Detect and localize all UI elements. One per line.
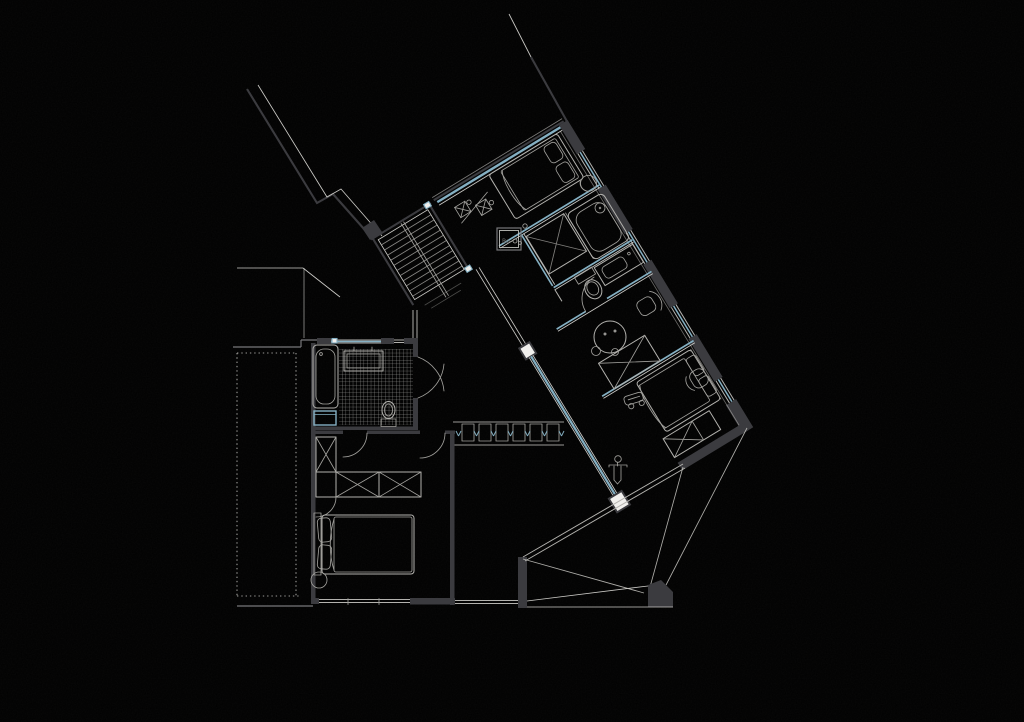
window-tick: [332, 339, 337, 344]
floor-plan-page: Bo: [0, 0, 1024, 722]
south-wall: [311, 427, 418, 431]
wall-pier: [317, 338, 331, 344]
wall-pier: [518, 557, 527, 608]
east-wall: [413, 343, 418, 357]
east-wall: [413, 398, 418, 429]
south-wall: [410, 598, 455, 605]
floor-plan-svg: Bo: [0, 0, 1024, 722]
east-wall: [450, 433, 455, 605]
wall-pier: [381, 338, 394, 344]
tiled-floor: [339, 349, 413, 425]
wall-pier: [311, 598, 319, 604]
paper-grain-texture: [0, 0, 1024, 722]
utility-box-label: Bo: [502, 238, 510, 245]
